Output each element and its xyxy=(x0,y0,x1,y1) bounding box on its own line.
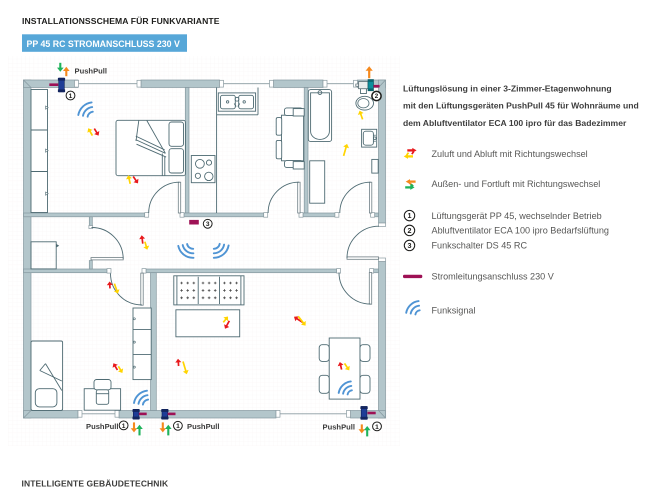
svg-text:mit den Lüftungsgeräten PushPu: mit den Lüftungsgeräten PushPull 45 für … xyxy=(403,101,639,111)
svg-text:Funkschalter DS 45 RC: Funkschalter DS 45 RC xyxy=(432,241,528,251)
svg-text:PushPull: PushPull xyxy=(86,422,119,431)
svg-text:dem Abluftventilator ECA 100 i: dem Abluftventilator ECA 100 ipro für da… xyxy=(403,118,627,128)
svg-text:3: 3 xyxy=(408,241,412,250)
svg-text:Lüftungsgerät PP 45, wechselnd: Lüftungsgerät PP 45, wechselnder Betrieb xyxy=(432,211,602,221)
svg-text:3: 3 xyxy=(206,221,210,228)
svg-text:Stromleitungsanschluss 230 V: Stromleitungsanschluss 230 V xyxy=(432,272,555,282)
svg-text:Zuluft und Abluft mit Richtung: Zuluft und Abluft mit Richtungswechsel xyxy=(432,149,588,159)
svg-text:PushPull: PushPull xyxy=(75,66,108,75)
svg-text:PP 45 RC STROMANSCHLUSS 230 V: PP 45 RC STROMANSCHLUSS 230 V xyxy=(27,39,180,49)
svg-text:Außen- und Fortluft mit Richtu: Außen- und Fortluft mit Richtungswechsel xyxy=(432,179,601,189)
svg-text:1: 1 xyxy=(176,423,180,430)
svg-text:1: 1 xyxy=(122,423,126,430)
svg-text:1: 1 xyxy=(375,424,379,431)
svg-text:2: 2 xyxy=(408,226,412,235)
svg-text:Lüftungslösung in einer 3-Zimm: Lüftungslösung in einer 3-Zimmer-Etagenw… xyxy=(403,83,612,93)
svg-text:2: 2 xyxy=(375,93,379,100)
svg-text:Funksignal: Funksignal xyxy=(432,305,476,315)
svg-text:Abluftventilator ECA 100 ipro: Abluftventilator ECA 100 ipro Bedarfslüf… xyxy=(432,226,609,236)
svg-text:INSTALLATIONSSCHEMA FÜR FUNKVA: INSTALLATIONSSCHEMA FÜR FUNKVARIANTE xyxy=(22,16,220,26)
svg-text:PushPull: PushPull xyxy=(323,423,356,432)
svg-text:INTELLIGENTE GEBÄUDETECHNIK: INTELLIGENTE GEBÄUDETECHNIK xyxy=(22,478,169,488)
svg-text:1: 1 xyxy=(69,93,73,100)
svg-text:1: 1 xyxy=(408,211,412,220)
svg-text:PushPull: PushPull xyxy=(187,422,220,431)
